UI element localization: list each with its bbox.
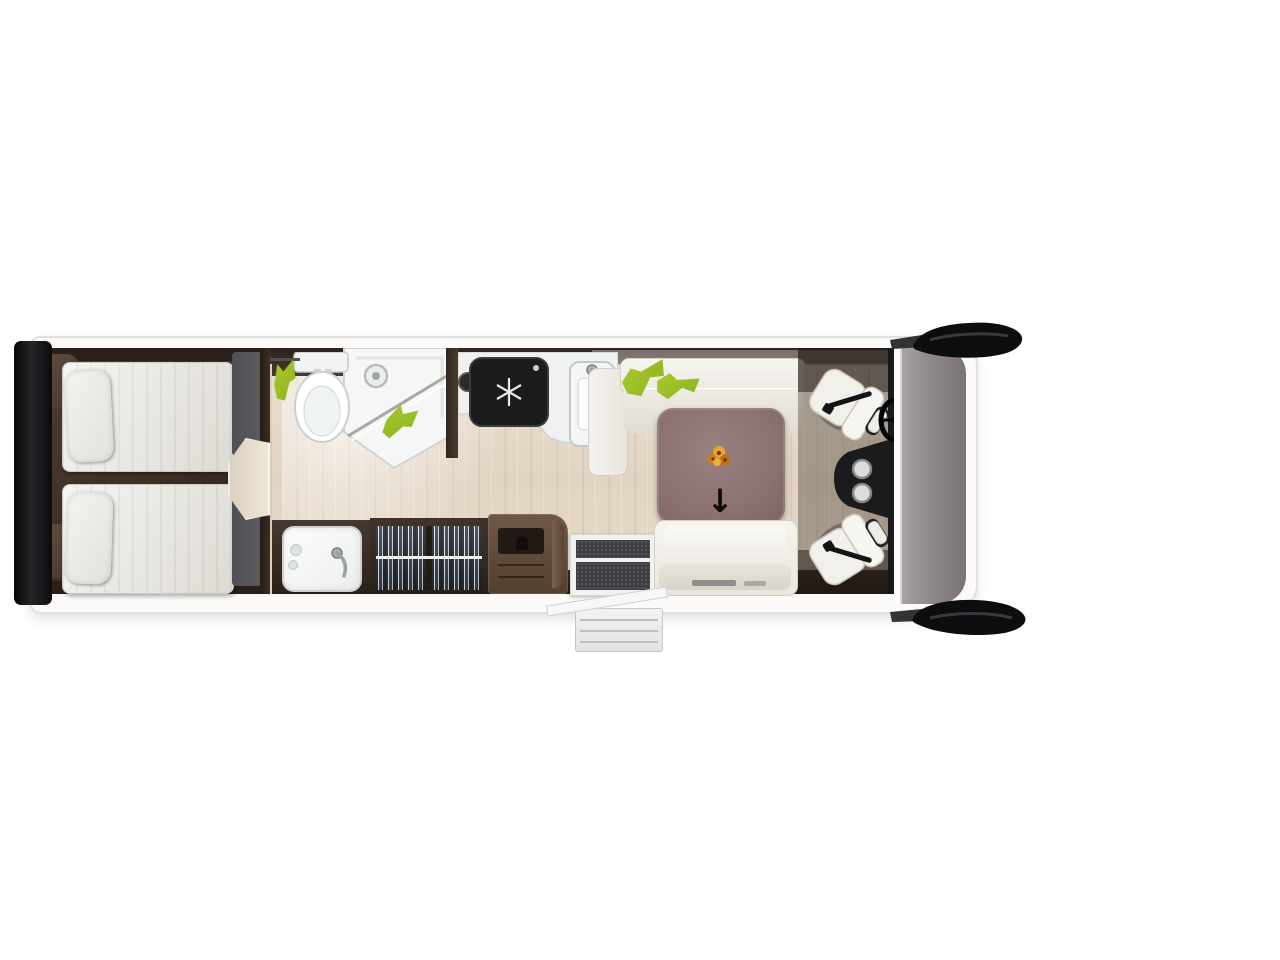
entry-mat-panel-top (576, 540, 650, 558)
entry-mat-panel-bottom (576, 562, 650, 590)
soap-dish (290, 544, 302, 556)
pillow-bottom-bed (64, 491, 113, 585)
kitchen-side-wall (446, 348, 458, 458)
bench-sofa-backrest (659, 564, 791, 590)
flower-decoration-icon (704, 440, 736, 472)
washbasin-faucet-icon (328, 544, 356, 584)
cabinet-side-door (552, 520, 564, 588)
floorplan-scene: ↓ (0, 0, 1280, 960)
rear-bumper-bar (14, 341, 52, 605)
soap-dish-2 (288, 560, 298, 570)
cab-front-cap (900, 346, 966, 604)
bottom-mirror-gloss (930, 614, 1012, 619)
towel-rail (270, 358, 300, 361)
entry-door-mat (570, 534, 656, 596)
table-slide-arrow-icon: ↓ (702, 484, 738, 520)
wardrobe-rail (376, 556, 482, 559)
sideboard-hardware (692, 580, 736, 586)
step-line-3 (580, 641, 658, 643)
entry-steps (575, 608, 663, 652)
pillow-top-bed (64, 369, 115, 463)
cabinet-drawer-line-2 (498, 576, 544, 578)
cup-holder-1-icon (853, 460, 871, 478)
cup-holder-2-icon (853, 484, 871, 502)
vehicle-body: ↓ (30, 336, 978, 614)
bench-sofa-seat (664, 525, 786, 563)
cabinet-handle (516, 536, 528, 550)
step-line-2 (580, 630, 658, 632)
step-line-1 (580, 619, 658, 621)
sideboard-hardware-2 (744, 581, 766, 586)
cabinet-drawer-line-1 (498, 564, 544, 566)
